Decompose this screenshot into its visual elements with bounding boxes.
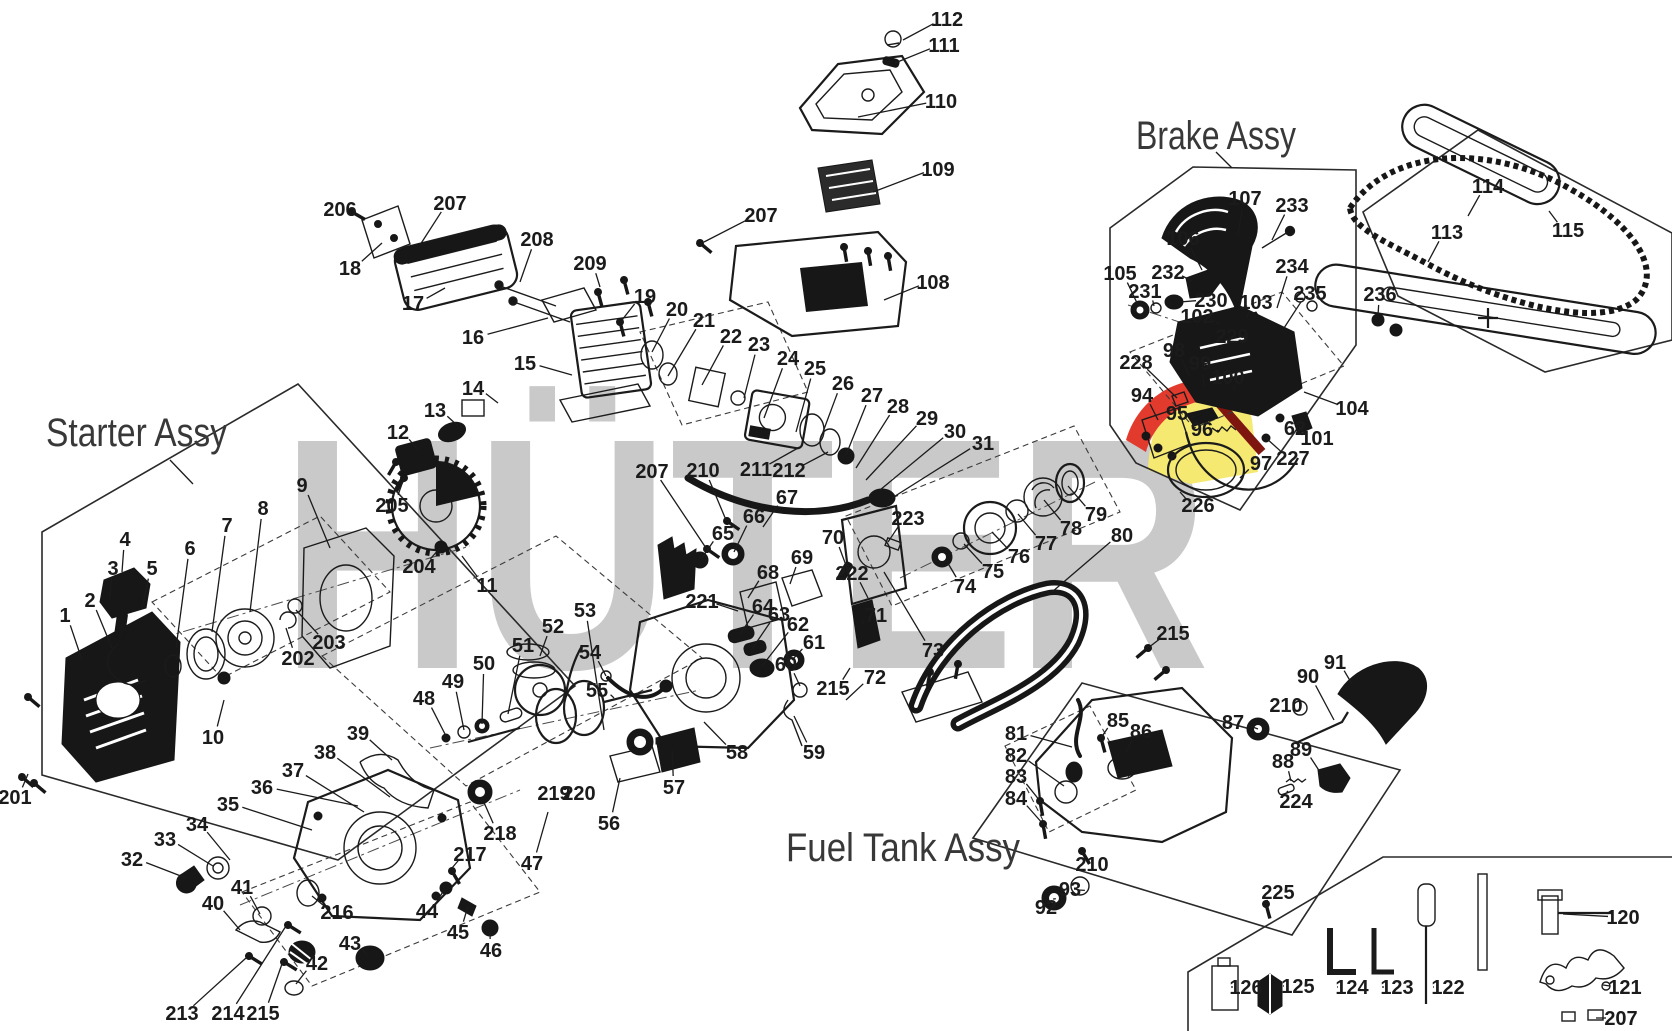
huter-watermark: HÜTER [280, 369, 1210, 738]
callout-leader-line [306, 776, 364, 812]
part-callout: 39 [347, 723, 369, 745]
part-callout: 123 [1380, 977, 1413, 999]
part-callout: 38 [314, 742, 336, 764]
part-callout: 65 [712, 523, 734, 545]
part-callout: 27 [861, 385, 883, 407]
part-callout: 115 [1552, 220, 1584, 242]
part-callout: 125 [1281, 976, 1314, 998]
part-callout: 59 [803, 742, 825, 764]
part-callout: 224 [1279, 791, 1313, 813]
part-callout: 236 [1363, 284, 1396, 306]
part-callout: 218 [483, 823, 516, 845]
part-callout: 120 [1606, 907, 1639, 929]
part-callout: 121 [1608, 977, 1641, 999]
part-callout: 16 [462, 327, 484, 349]
part-callout: 67 [776, 487, 798, 509]
part-callout: 10 [202, 727, 224, 749]
part-callout: 7 [221, 515, 232, 537]
part-callout: 53 [574, 600, 596, 622]
assembly-title: Starter Assy [46, 411, 227, 455]
part-callout: 78 [1060, 518, 1082, 540]
part-callout: 234 [1275, 256, 1309, 278]
callout-leader-line [1468, 195, 1480, 216]
callout-leader-line [704, 220, 747, 242]
part-callout: 60 [775, 654, 797, 676]
part-callout: 98 [1163, 340, 1185, 362]
callout-leader-line [146, 863, 186, 878]
callout-leader-line [1428, 241, 1439, 262]
part-callout: 34 [186, 814, 209, 836]
part-callout: 40 [202, 893, 224, 915]
callout-leader-line [1284, 302, 1301, 328]
part-callout: 212 [772, 460, 805, 482]
part-callout: 210 [1269, 695, 1302, 717]
part-callout: 91 [1324, 652, 1346, 674]
part-callout: 9 [296, 475, 307, 497]
callout-leader-line [277, 789, 358, 806]
callout-leader-line [613, 778, 620, 812]
callout-leader-line [370, 740, 392, 760]
part-callout: 21 [693, 310, 715, 332]
part-callout: 15 [514, 353, 536, 375]
part-callout: 86 [1130, 721, 1152, 743]
part-callout: 22 [720, 326, 742, 348]
part-callout: 36 [251, 777, 273, 799]
callout-leader-line [122, 550, 124, 572]
part-callout: 82 [1005, 745, 1027, 767]
part-callout: 74 [954, 576, 977, 598]
part-callout: 111 [928, 35, 959, 57]
part-callout: 201 [0, 787, 32, 809]
part-callout: 75 [982, 561, 1004, 583]
part-callout: 69 [791, 547, 813, 569]
part-callout: 210 [686, 460, 719, 482]
part-callout: 112 [931, 9, 963, 31]
part-callout: 214 [211, 1003, 245, 1025]
part-callout: 114 [1472, 176, 1505, 198]
callout-leader-line [1029, 761, 1064, 786]
part-callout: 56 [598, 813, 620, 835]
callout-leader-line [178, 844, 213, 866]
part-callout: 54 [579, 642, 602, 664]
callout-leader-line [193, 958, 246, 1006]
part-callout: 32 [121, 849, 143, 871]
part-callout: 207 [433, 193, 466, 215]
part-callout: 66 [743, 506, 765, 528]
part-callout: 225 [1261, 882, 1294, 904]
part-callout: 231 [1128, 281, 1161, 303]
part-callout: 226 [1181, 495, 1214, 517]
part-callout: 46 [480, 940, 502, 962]
part-callout: 113 [1431, 222, 1463, 244]
part-callout: 221 [685, 591, 718, 613]
part-callout: 11 [476, 575, 497, 597]
callout-leader-line [337, 758, 390, 797]
part-callout: 44 [416, 901, 439, 923]
part-callout: 106 [1166, 228, 1199, 250]
part-callout: 124 [1335, 977, 1369, 999]
callout-leader-line [427, 288, 445, 298]
part-callout: 209 [573, 253, 606, 275]
part-callout: 95 [1166, 403, 1188, 425]
assembly-title: Fuel Tank Assy [786, 826, 1020, 870]
part-callout: 18 [339, 258, 361, 280]
callout-leader-line [1272, 215, 1285, 240]
part-callout: 110 [925, 91, 957, 113]
part-callout: 107 [1228, 188, 1261, 210]
part-callout: 207 [635, 461, 668, 483]
part-callout: 83 [1005, 766, 1027, 788]
part-callout: 207 [744, 205, 777, 227]
part-callout: 228 [1119, 352, 1152, 374]
part-callout: 92 [1035, 897, 1057, 919]
callout-leader-line [242, 807, 312, 830]
part-callout: 220 [562, 783, 595, 805]
part-callout: 233 [1275, 195, 1308, 217]
part-callout: 23 [748, 334, 770, 356]
part-callout: 37 [282, 760, 304, 782]
part-callout: 3 [107, 558, 118, 580]
part-callout: 222 [835, 563, 868, 585]
part-callout: 19 [634, 286, 656, 308]
part-callout: 55 [586, 680, 608, 702]
part-callout: 232 [1151, 262, 1184, 284]
part-callout: 104 [1335, 398, 1369, 420]
part-callout: 101 [1300, 428, 1333, 450]
part-callout: 217 [453, 844, 486, 866]
part-callout: 76 [1008, 546, 1030, 568]
callout-leader-line [212, 536, 225, 632]
assembly-title-leader [170, 460, 193, 484]
callout-leader-line [236, 926, 286, 1004]
part-callout: 207 [1604, 1008, 1637, 1030]
part-callout: 126 [1229, 977, 1262, 999]
part-callout: 80 [1111, 525, 1133, 547]
part-callout: 42 [306, 953, 328, 975]
part-callout: 87 [1222, 712, 1244, 734]
callout-leader-line [1217, 430, 1220, 431]
part-callout: 85 [1107, 710, 1129, 732]
guide-bar-chain-parts [1295, 97, 1659, 356]
part-callout: 210 [1075, 854, 1108, 876]
part-callout: 48 [413, 688, 435, 710]
part-callout: 4 [119, 529, 131, 551]
callout-leader-line [536, 812, 548, 853]
part-callout: 102 [1180, 306, 1213, 328]
part-callout: 68 [757, 562, 779, 584]
part-callout: 45 [447, 922, 469, 944]
part-callout: 213 [165, 1003, 198, 1025]
part-callout: 2 [84, 590, 95, 612]
part-callout: 29 [916, 408, 938, 430]
part-callout: 216 [320, 902, 353, 924]
part-callout: 1 [59, 605, 70, 627]
part-callout: 235 [1293, 283, 1326, 305]
callout-leader-line [1277, 276, 1287, 308]
part-callout: 35 [217, 794, 239, 816]
part-callout: 73 [922, 640, 944, 662]
part-callout: 51 [512, 635, 534, 657]
part-callout: 79 [1085, 504, 1107, 526]
part-callout: 215 [816, 678, 849, 700]
part-callout: 52 [542, 616, 564, 638]
part-callout: 203 [312, 632, 345, 654]
part-callout: 81 [1005, 723, 1027, 745]
chainsaw-exploded-diagram: HÜTER [0, 0, 1672, 1031]
part-callout: 109 [921, 159, 954, 181]
callout-leader-line [1378, 305, 1379, 316]
parts-diagram-page: HÜTER [0, 0, 1672, 1031]
callout-leader-line [520, 249, 531, 282]
crankcase-left-av-parts [176, 754, 498, 995]
part-callout: 47 [521, 853, 543, 875]
part-callout: 202 [281, 648, 314, 670]
part-callout: 84 [1005, 788, 1028, 810]
part-callout: 97 [1250, 453, 1272, 475]
part-callout: 5 [146, 558, 157, 580]
part-callout: 208 [520, 229, 553, 251]
part-callout: 89 [1290, 739, 1312, 761]
callout-leader-line [873, 173, 924, 192]
part-callout: 43 [339, 933, 361, 955]
callout-leader-line [858, 103, 926, 117]
part-callout: 90 [1297, 666, 1319, 688]
part-callout: 94 [1131, 385, 1154, 407]
part-callout: 71 [865, 605, 887, 627]
part-callout: 50 [473, 653, 495, 675]
callout-leader-line [1563, 914, 1608, 916]
part-callout: 26 [832, 373, 854, 395]
callout-leader-line [596, 273, 600, 287]
part-callout: 205 [375, 495, 408, 517]
part-callout: 77 [1035, 533, 1057, 555]
part-callout: 25 [804, 358, 826, 380]
callout-leader-line [296, 971, 306, 984]
callout-leader-line [176, 559, 188, 648]
part-callout: 99 [1189, 353, 1211, 375]
part-callout: 122 [1431, 977, 1464, 999]
part-callout: 211 [740, 459, 772, 481]
callout-leader-line [268, 961, 283, 1003]
callout-leader-line [488, 318, 548, 334]
part-callout: 12 [387, 422, 409, 444]
callout-leader-line [217, 700, 224, 726]
callout-leader-line [207, 832, 230, 860]
part-callout: 8 [257, 498, 268, 520]
part-callout: 206 [323, 199, 356, 221]
part-callout: 41 [231, 877, 253, 899]
part-callout: 108 [916, 272, 949, 294]
part-callout: 30 [944, 421, 966, 443]
callout-leader-line [250, 519, 261, 612]
callout-leader-line [1316, 685, 1334, 720]
part-callout: 33 [154, 829, 176, 851]
part-callout: 96 [1191, 419, 1213, 441]
part-callout: 227 [1276, 448, 1309, 470]
callout-leader-line [362, 243, 382, 261]
part-callout: 70 [822, 527, 844, 549]
part-callout: 103 [1239, 292, 1272, 314]
part-callout: 223 [891, 508, 924, 530]
part-callout: 215 [1156, 623, 1189, 645]
part-callout: 72 [864, 667, 886, 689]
part-callout: 57 [663, 777, 685, 799]
part-callout: 20 [666, 299, 688, 321]
part-callout: 100 [1211, 367, 1244, 389]
part-callout: 31 [972, 433, 994, 455]
part-callout: 24 [777, 348, 800, 370]
assembly-title: Brake Assy [1136, 114, 1296, 158]
part-callout: 28 [887, 396, 909, 418]
part-callout: 215 [246, 1003, 279, 1025]
part-callout: 13 [424, 400, 446, 422]
part-callout: 17 [402, 293, 424, 315]
part-callout: 6 [184, 538, 195, 560]
part-callout: 204 [402, 556, 436, 578]
callout-leader-line [224, 911, 240, 930]
part-callout: 14 [462, 378, 485, 400]
part-callout: 61 [803, 632, 825, 654]
part-callout: 49 [442, 671, 464, 693]
part-callout: 93 [1059, 879, 1081, 901]
part-callout: 229 [1215, 326, 1248, 348]
part-callout: 58 [726, 742, 748, 764]
